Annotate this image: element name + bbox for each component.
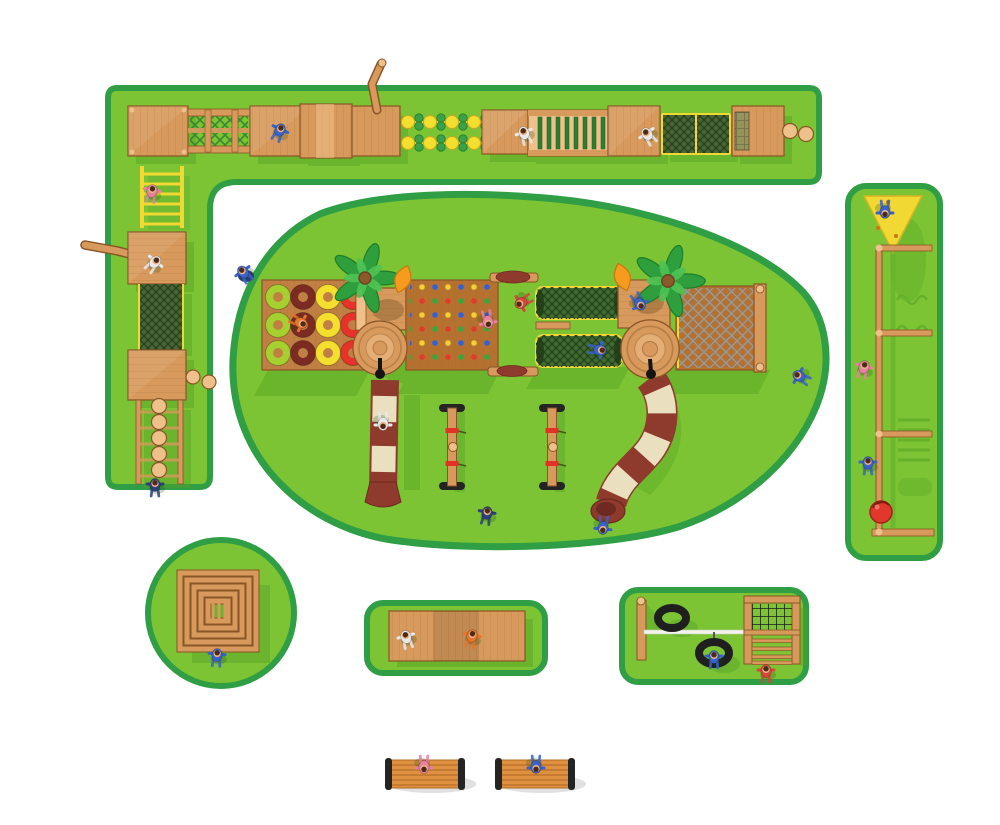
crossbar <box>878 330 932 336</box>
zone-main-play-island <box>233 194 826 546</box>
rung-bridge <box>528 110 608 156</box>
wood-ball <box>783 124 798 139</box>
cargo-net-climb <box>138 284 184 350</box>
arch-bridge <box>300 104 352 158</box>
zone-tire-swing-pad <box>622 590 808 682</box>
rail-bridge <box>188 109 250 153</box>
rope-net-bridge <box>676 284 766 372</box>
crossbar <box>878 431 932 437</box>
wood-ball <box>202 375 216 389</box>
platform-deck <box>128 106 188 156</box>
playground-site-plan <box>0 0 1000 825</box>
zone-deck-pad <box>367 603 545 673</box>
playground-plan-canvas <box>0 0 1000 825</box>
red-ball <box>870 501 892 523</box>
log-pyramid <box>180 573 256 649</box>
chain-net-crawl <box>662 114 730 154</box>
wood-ball <box>186 370 200 384</box>
park-bench <box>385 758 476 793</box>
crossbar <box>878 245 932 251</box>
swing-beam <box>644 630 748 634</box>
wood-ball <box>799 127 814 142</box>
